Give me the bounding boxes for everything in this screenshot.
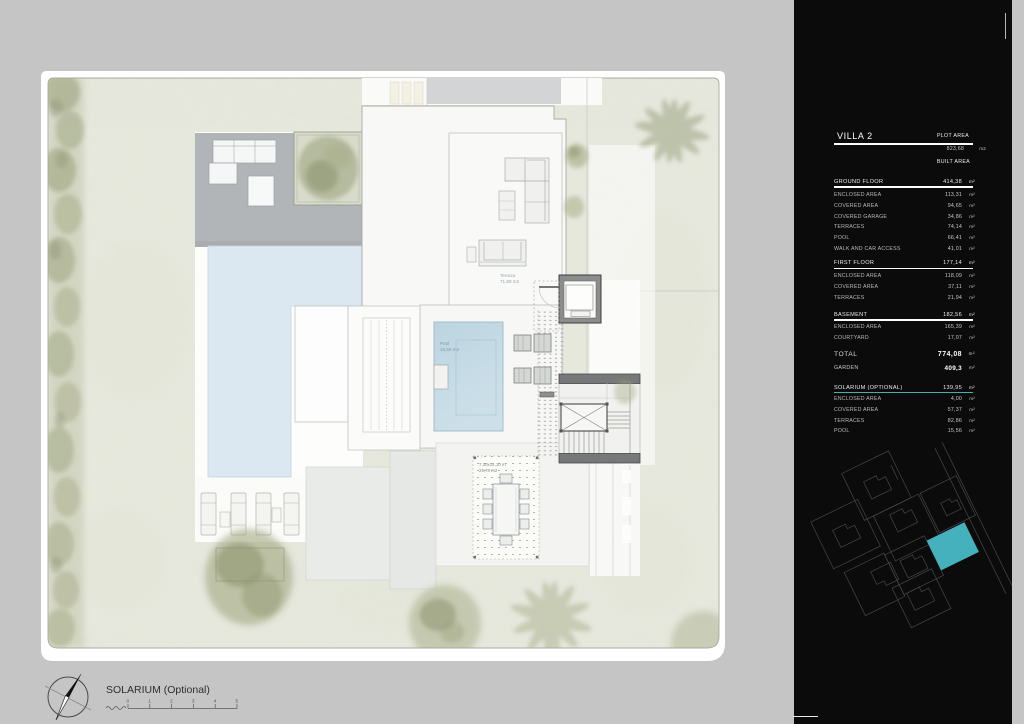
svg-text:Terraza: Terraza [500,273,516,278]
svg-text:2: 2 [170,699,173,704]
svg-text:SOLARIUM (Optional): SOLARIUM (Optional) [106,684,210,696]
svg-text:4: 4 [214,699,217,704]
svg-text:0: 0 [127,699,130,704]
svg-text:71,88 m2: 71,88 m2 [500,279,520,284]
svg-text:1: 1 [148,699,151,704]
svg-text:3: 3 [192,699,195,704]
svg-text:7,30x14,10 m: 7,30x14,10 m [479,462,506,467]
svg-text:5: 5 [236,699,239,704]
svg-text:15,56 m2: 15,56 m2 [440,347,460,352]
svg-text:Pool: Pool [440,341,449,346]
svg-text:29,78 m2: 29,78 m2 [479,468,498,473]
